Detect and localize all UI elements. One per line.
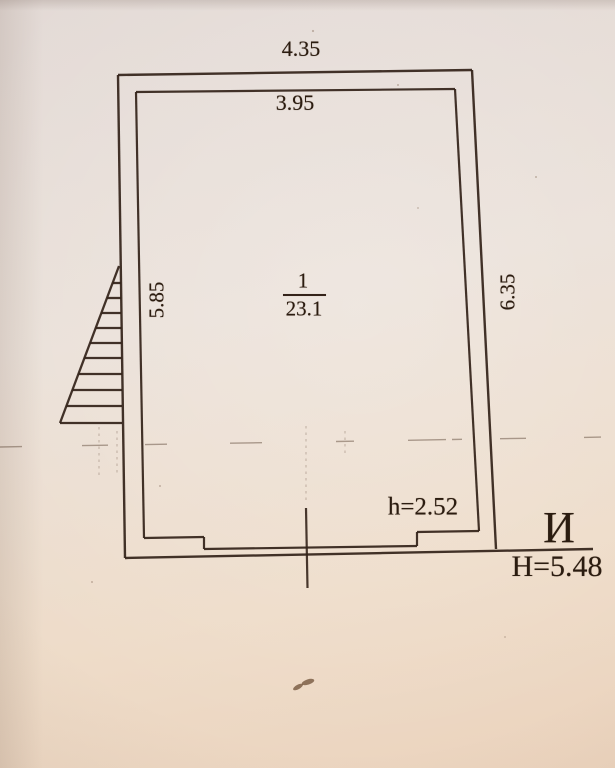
scanned-floor-plan-photo: 4.35 3.95 5.85 6.35 1 23.1 h=2.52 И Н=5.…: [0, 0, 615, 768]
dim-left-label: 5.85: [147, 282, 168, 319]
stairs-symbol: [60, 266, 122, 423]
interior-height-label: h=2.52: [388, 495, 458, 520]
dim-right-label: 6.35: [498, 274, 519, 311]
pencil-marks: [99, 426, 345, 500]
smudge-mark: [292, 678, 315, 692]
bottom-wall-opening-detail: [144, 531, 479, 549]
outer-wall: [118, 70, 593, 558]
dim-top-inner-label: 3.95: [276, 92, 315, 114]
axis-letter-label: И: [543, 506, 575, 550]
survey-tick-mark: [306, 508, 308, 588]
dashed-boundary-line: [0, 437, 601, 447]
room-number-label: 1: [298, 271, 309, 292]
room-area-label: 23.1: [286, 299, 323, 320]
dim-top-outer-label: 4.35: [282, 38, 321, 60]
overall-height-label: Н=5.48: [511, 552, 602, 582]
floor-plan-linework: [0, 0, 615, 768]
